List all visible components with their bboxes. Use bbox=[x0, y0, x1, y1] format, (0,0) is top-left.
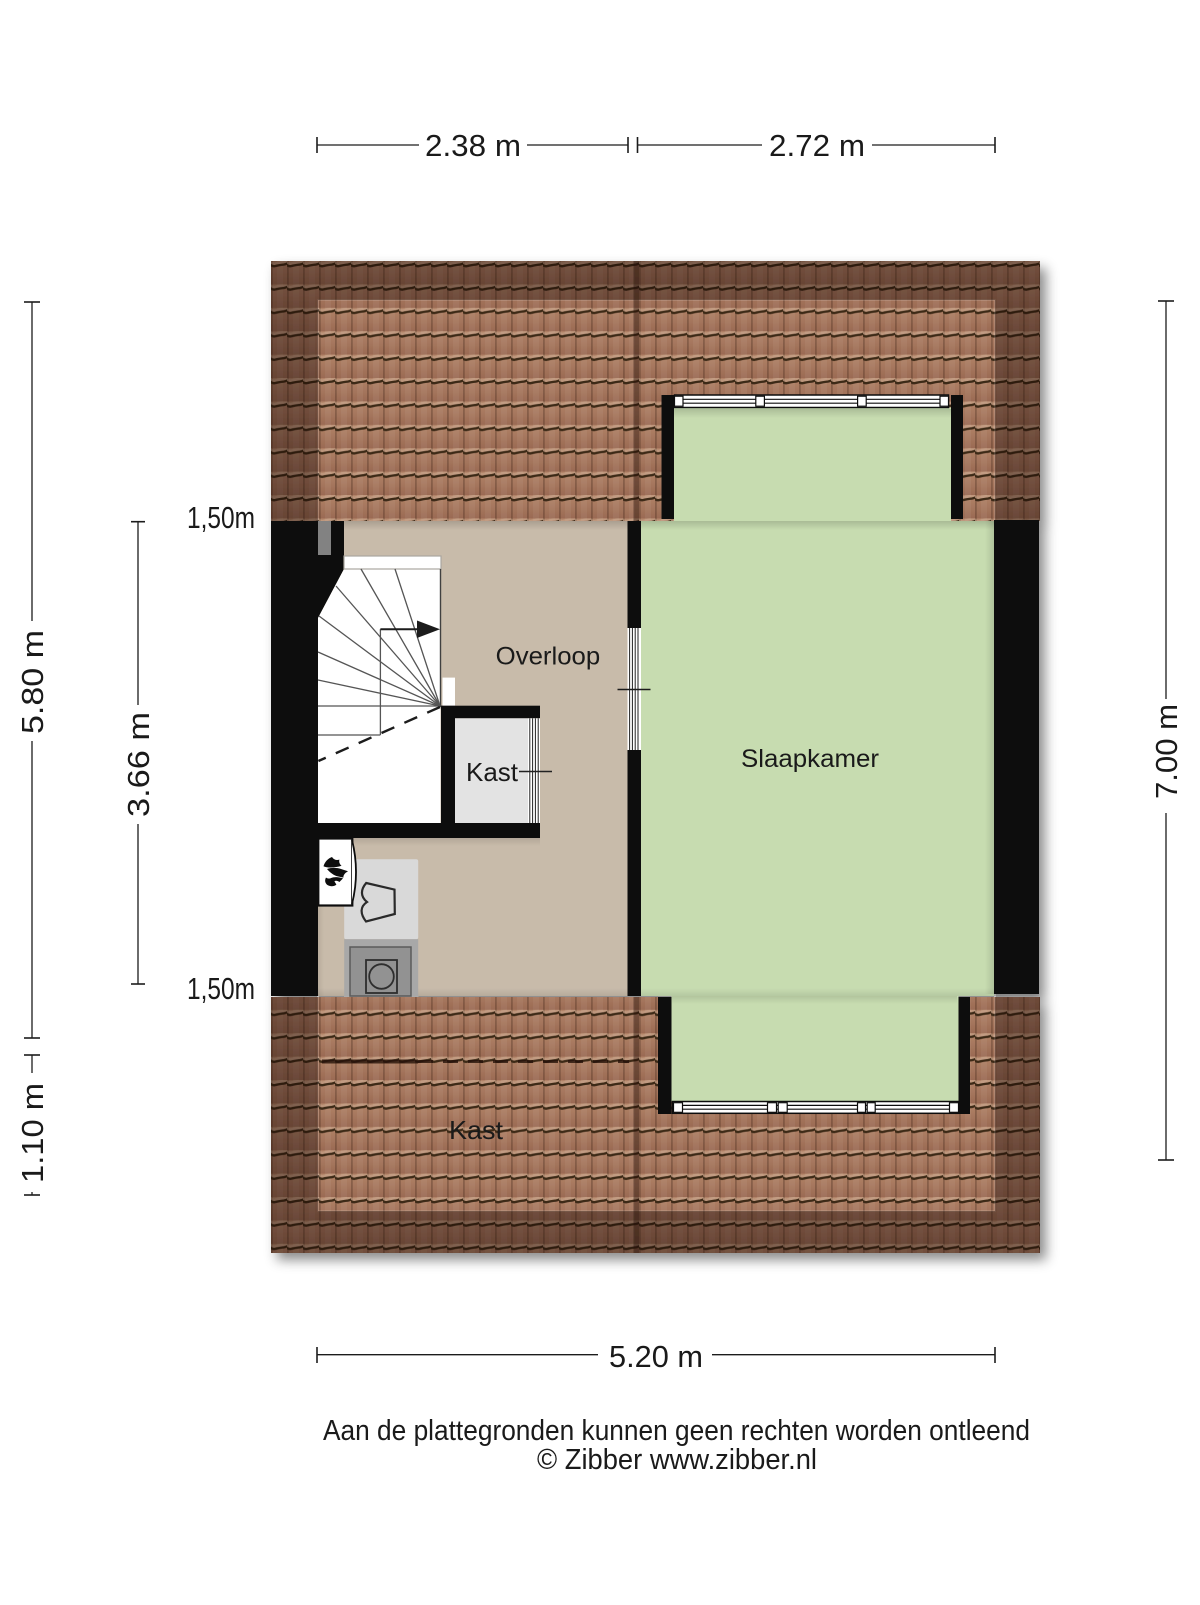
svg-text:1.10 m: 1.10 m bbox=[15, 1083, 50, 1183]
svg-text:5.20 m: 5.20 m bbox=[609, 1339, 703, 1374]
svg-text:2.72 m: 2.72 m bbox=[769, 128, 865, 163]
svg-text:1,50m: 1,50m bbox=[187, 500, 255, 535]
svg-text:© Zibber www.zibber.nl: © Zibber www.zibber.nl bbox=[537, 1444, 817, 1476]
svg-text:3.66 m: 3.66 m bbox=[121, 712, 156, 817]
svg-text:Overloop: Overloop bbox=[496, 643, 601, 671]
svg-text:5.80 m: 5.80 m bbox=[15, 630, 50, 734]
svg-text:7.00 m: 7.00 m bbox=[1149, 704, 1184, 799]
svg-text:Kast: Kast bbox=[466, 757, 519, 787]
svg-text:2.38 m: 2.38 m bbox=[425, 128, 521, 163]
svg-text:Kast: Kast bbox=[449, 1115, 504, 1145]
svg-text:Aan de plattegronden kunnen ge: Aan de plattegronden kunnen geen rechten… bbox=[323, 1415, 1030, 1447]
svg-text:Slaapkamer: Slaapkamer bbox=[741, 745, 879, 773]
svg-text:1,50m: 1,50m bbox=[187, 971, 255, 1006]
